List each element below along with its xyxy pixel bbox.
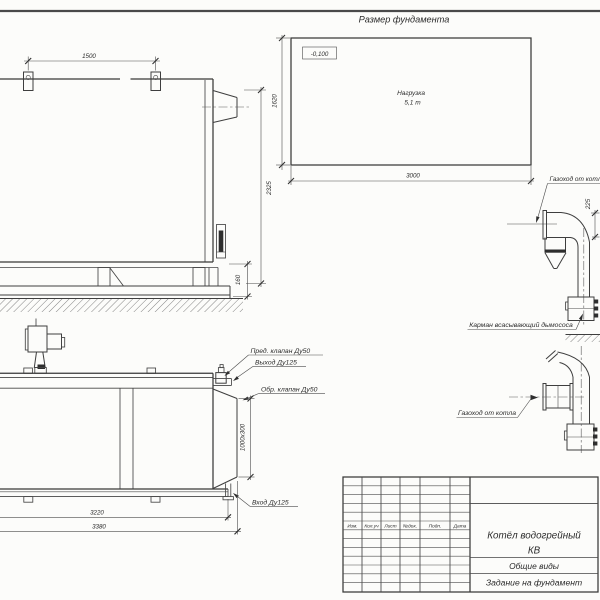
duct-label-upper: Газоход от котла — [550, 175, 600, 183]
doc-type-line1: Общие виды — [509, 561, 559, 571]
safety-valve-label: Пред. клапан Ду50 — [251, 347, 311, 355]
foundation-plan-title: Размер фундамента — [359, 15, 450, 25]
dimension-3220: 3220 — [0, 499, 231, 521]
product-name-line1: Котёл водогрейный — [487, 531, 581, 542]
dimension-1000x300: 1000х300 — [239, 396, 255, 481]
col-data: Дата — [453, 523, 467, 529]
side-chute — [213, 389, 237, 489]
lifting-lugs — [24, 72, 161, 91]
title-block-headers: Изм. Кол.уч Лист №док. Подп. Дата — [347, 523, 466, 529]
drawing-canvas: 1500 2325 160 Размер фундамента -0,100 Н — [0, 0, 600, 600]
dim-1500-text: 1500 — [82, 53, 96, 60]
boiler-side-view: 1500 2325 160 — [0, 53, 273, 312]
foundation-plan: Размер фундамента -0,100 Нагрузка 5,1 т … — [272, 15, 535, 186]
leader-arrow — [536, 216, 540, 223]
safety-valve-fitting — [216, 365, 226, 384]
callout-inlet: Вход Ду125 — [233, 493, 298, 506]
col-koluch: Кол.уч — [364, 523, 379, 529]
boiler-body — [0, 79, 213, 262]
outlet-label: Выход Ду125 — [255, 358, 297, 366]
elevation-mark: -0,100 — [303, 47, 337, 59]
dimension-2325: 2325 — [244, 87, 273, 287]
duct-callout-lower: Газоход от котла — [457, 395, 539, 418]
dimension-1500: 1500 — [24, 53, 160, 71]
dim-1000x300-text: 1000х300 — [240, 423, 247, 451]
flue-duct-lower-view: Газоход от котла — [457, 346, 598, 453]
duct-label-lower: Газоход от котла — [458, 409, 516, 417]
dimension-1620: 1620 — [272, 35, 291, 170]
dim-3380-text: 3380 — [92, 524, 106, 531]
pocket-label: Карман всасывающий дымососа — [469, 321, 573, 329]
dim-160-text: 160 — [235, 274, 242, 285]
leader-arrow — [531, 395, 539, 401]
callout-check-valve: Обр. клапан Ду50 — [243, 385, 326, 400]
boiler-front-view: Пред. клапан Ду50 Выход Ду125 Обр. клапа… — [0, 319, 325, 535]
col-podp: Подп. — [429, 523, 442, 529]
callout-outlet: Выход Ду125 — [233, 358, 306, 381]
title-block-name: Котёл водогрейный КВ Общие виды Задание … — [486, 531, 582, 588]
suction-pocket — [543, 211, 590, 328]
leader-arrow — [579, 314, 583, 321]
pump-assembly — [25, 319, 64, 374]
elevation-mark-text: -0,100 — [311, 51, 329, 58]
dimension-160: 160 — [229, 261, 252, 300]
load-note: Нагрузка 5,1 т — [397, 90, 425, 107]
boiler-shell — [0, 373, 228, 502]
dim-3220-text: 3220 — [90, 510, 104, 517]
col-izm: Изм. — [347, 523, 357, 529]
flue-duct-upper-view: Газоход от котла 225 — [468, 175, 600, 342]
boiler-duct-section — [509, 384, 586, 411]
drawing-sheet: 1500 2325 160 Размер фундамента -0,100 Н — [0, 0, 600, 600]
dim-3000-text: 3000 — [406, 173, 420, 180]
product-name-line2: КВ — [528, 546, 541, 557]
burner-flange — [217, 225, 226, 259]
base-frame — [0, 268, 230, 299]
leader-arrow — [233, 493, 239, 498]
dim-1620-text: 1620 — [272, 94, 279, 108]
dimension-3000: 3000 — [288, 166, 534, 185]
check-valve-label: Обр. клапан Ду50 — [261, 385, 318, 393]
dim-225-text: 225 — [585, 198, 592, 210]
inlet-label: Вход Ду125 — [252, 498, 289, 506]
load-note-line1: Нагрузка — [397, 90, 425, 97]
elbow — [546, 351, 590, 378]
col-list: Лист — [383, 523, 396, 529]
gas-outlet-nozzle — [202, 91, 251, 123]
col-ndok: №док. — [403, 523, 417, 529]
doc-type-line2: Задание на фундамент — [486, 578, 582, 588]
dim-2325-text: 2325 — [266, 181, 273, 196]
title-block: Изм. Кол.уч Лист №док. Подп. Дата Котёл … — [343, 477, 598, 592]
ground-hatch — [0, 299, 243, 313]
ground-hatch-small — [566, 335, 600, 343]
pocket-callout: Карман всасывающий дымососа — [468, 314, 584, 330]
load-note-line2: 5,1 т — [404, 100, 421, 107]
